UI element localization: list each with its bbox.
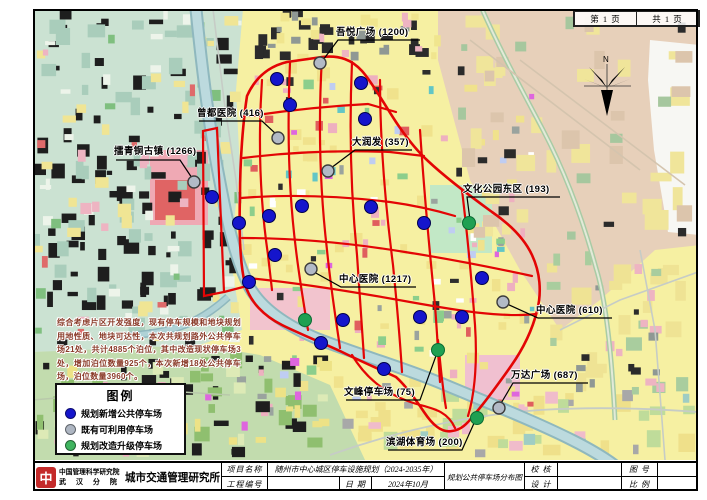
legend-dot-upgrade [65, 440, 76, 451]
parking-dot-new [456, 311, 469, 324]
legend-item-new: 规划新增公共停车场 [65, 407, 184, 420]
page-number-total: 共 1 页 [637, 12, 698, 25]
scale-label-cell: 比 例 [622, 477, 658, 491]
callout-label: 擂青铜古镇 (1266) [114, 143, 196, 157]
parking-dot-new [359, 113, 372, 126]
organization-line2: 武 汉 分 院 [59, 477, 123, 487]
callout-leader [323, 40, 420, 60]
page-number-current: 第 1 页 [575, 12, 637, 25]
parking-dot-new [355, 77, 368, 90]
park-region [430, 185, 492, 253]
organization-cell: 中 中国管理科学研究院 武 汉 分 院 城市交通管理研究所 [33, 463, 222, 491]
parking-dot-existing [322, 165, 334, 177]
parking-dot-new [365, 201, 378, 214]
figure-number-value-cell [658, 463, 698, 477]
parking-dot-existing [497, 296, 509, 308]
compass-north-label: N [603, 55, 609, 64]
legend-item-upgrade: 规划改造升级停车场 [65, 439, 184, 452]
parking-dot-new [414, 311, 427, 324]
bronze-town-red [155, 180, 195, 220]
parking-dot-upgrade [432, 344, 445, 357]
legend-dot-new [65, 408, 76, 419]
parking-dot-upgrade [299, 314, 312, 327]
callout-leader [116, 160, 192, 178]
callout-leader [199, 121, 276, 134]
project-name-label-cell: 项目名称 [222, 463, 268, 477]
callout-label: 万达广场 (687) [511, 367, 578, 381]
parking-dot-new [263, 210, 276, 223]
parking-dot-new [271, 73, 284, 86]
parking-dot-existing [493, 402, 505, 414]
east-blank-region [648, 40, 698, 235]
northeast-region [438, 9, 698, 330]
date-value-cell: 2024年10月 [372, 477, 445, 491]
callout-label: 中心医院 (610) [536, 302, 603, 316]
project-code-value-cell [268, 477, 340, 491]
parking-dot-existing [314, 57, 326, 69]
parking-dot-new [378, 363, 391, 376]
project-name-value-cell: 随州市中心城区停车设施规划（2024-2035年） [268, 463, 445, 477]
page-number-box: 第 1 页 共 1 页 [573, 10, 700, 27]
parking-dot-new [337, 314, 350, 327]
callout-label: 滨湖体育场 (200) [386, 434, 463, 448]
parking-dot-existing [305, 263, 317, 275]
legend-dot-existing [65, 424, 76, 435]
design-value-cell [558, 477, 622, 491]
parking-dot-existing [272, 132, 284, 144]
callout-label: 文化公园东区 (193) [463, 181, 550, 195]
parking-dot-new [418, 217, 431, 230]
legend-label: 规划新增公共停车场 [81, 407, 162, 420]
parking-dot-new [243, 276, 256, 289]
parking-dot-upgrade [471, 412, 484, 425]
parking-dot-new [476, 272, 489, 285]
callout-label: 大润发 (357) [352, 134, 409, 148]
figure-number-label-cell: 图 号 [622, 463, 658, 477]
organization-institute: 城市交通管理研究所 [125, 469, 220, 485]
callout-leader [500, 383, 588, 405]
parking-dot-new [269, 249, 282, 262]
title-block: 中 中国管理科学研究院 武 汉 分 院 城市交通管理研究所 项目名称 工程编号 … [33, 461, 698, 491]
drawing-sheet: N 综合考虑片区开发强度，现有停车规模和地块规划用地性质、地块可达性，本次共规划… [0, 0, 707, 500]
parking-dot-new [284, 99, 297, 112]
scale-value-cell [658, 477, 698, 491]
bronze-town-pink [150, 150, 208, 225]
legend-label: 既有可利用停车场 [81, 423, 153, 436]
planning-note: 综合考虑片区开发强度，现有停车规模和地块规划用地性质、地块可达性，本次共规划路外… [57, 316, 241, 384]
compass-rose: N [584, 55, 631, 116]
legend-title: 图例 [57, 387, 184, 404]
parking-dot-new [233, 217, 246, 230]
organization-line1: 中国管理科学研究院 [59, 467, 120, 477]
river [120, 9, 618, 468]
callout-label: 曾都医院 (416) [197, 105, 264, 119]
legend-box: 图例 规划新增公共停车场既有可利用停车场规划改造升级停车场 [55, 383, 186, 455]
callout-label: 文峰停车场 (75) [344, 384, 415, 398]
callout-leader [467, 197, 560, 220]
parking-dot-new [315, 337, 328, 350]
hills-region [33, 9, 243, 352]
oldtown-pink [250, 288, 330, 330]
callout-label: 中心医院 (1217) [339, 271, 412, 285]
callout-leader [331, 150, 412, 168]
project-code-label-cell: 工程编号 [222, 477, 268, 491]
parking-dot-new [296, 200, 309, 213]
legend-item-existing: 既有可利用停车场 [65, 423, 184, 436]
date-label-cell: 日 期 [340, 477, 372, 491]
organization-logo: 中 [36, 467, 56, 488]
callout-label: 吾悦广场 (1200) [336, 24, 409, 38]
legend-label: 规划改造升级停车场 [81, 439, 162, 452]
design-label-cell: 设 计 [525, 477, 558, 491]
parking-dot-new [206, 191, 219, 204]
parking-dot-upgrade [463, 217, 476, 230]
check-label-cell: 校 核 [525, 463, 558, 477]
parking-dot-existing [188, 176, 200, 188]
check-value-cell [558, 463, 622, 477]
drawing-title-cell: 规划公共停车场分布图 [445, 463, 525, 491]
